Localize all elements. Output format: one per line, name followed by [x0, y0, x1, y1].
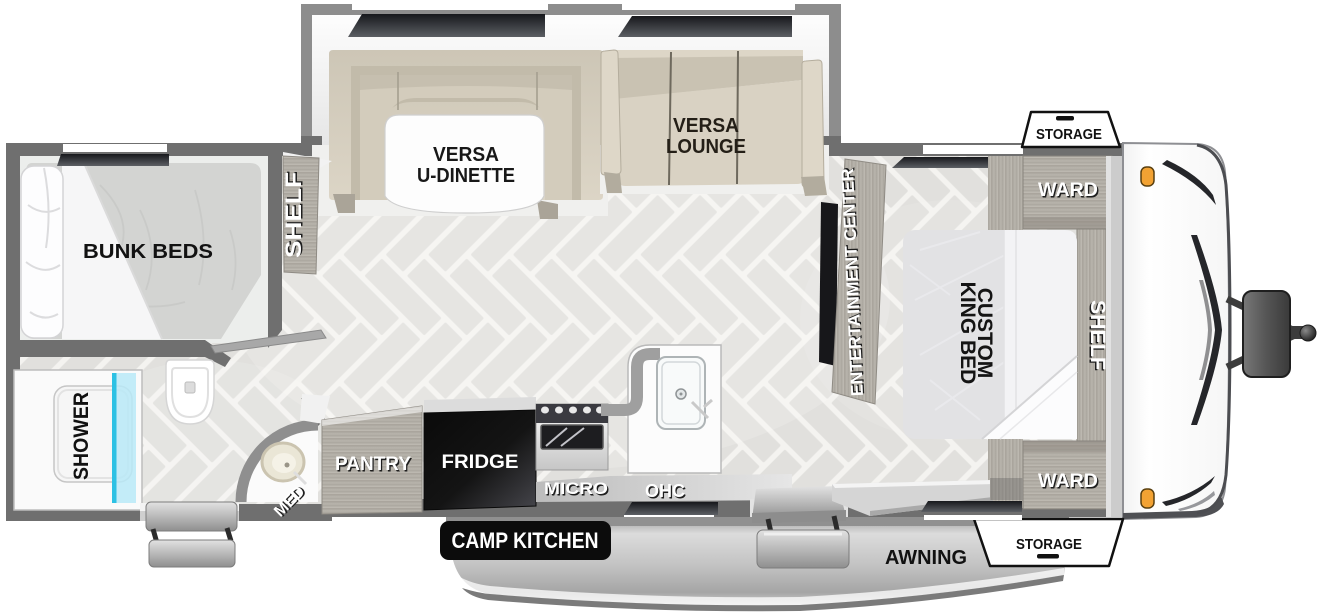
svg-text:VERSA: VERSA — [433, 144, 499, 166]
svg-text:STORAGE: STORAGE — [1036, 127, 1102, 143]
svg-text:AWNING: AWNING — [885, 547, 967, 569]
svg-text:MICRO: MICRO — [544, 479, 608, 498]
svg-text:FRIDGE: FRIDGE — [442, 452, 519, 473]
svg-text:SHELF: SHELF — [1086, 300, 1109, 370]
svg-text:SHOWER: SHOWER — [70, 392, 93, 480]
svg-text:WARD: WARD — [1038, 180, 1098, 201]
svg-text:OHC: OHC — [645, 481, 685, 501]
svg-text:CUSTOMKING BED: CUSTOMKING BED — [956, 282, 996, 385]
svg-text:WARD: WARD — [1038, 471, 1098, 492]
svg-text:BUNK BEDS: BUNK BEDS — [83, 241, 213, 263]
svg-text:PANTRY: PANTRY — [335, 454, 411, 475]
svg-text:U-DINETTE: U-DINETTE — [417, 165, 515, 187]
svg-text:CAMP KITCHEN: CAMP KITCHEN — [452, 528, 599, 553]
svg-text:LOUNGE: LOUNGE — [666, 136, 746, 158]
svg-text:STORAGE: STORAGE — [1016, 537, 1082, 553]
svg-text:SHELF: SHELF — [281, 172, 306, 258]
svg-text:VERSA: VERSA — [673, 115, 739, 137]
